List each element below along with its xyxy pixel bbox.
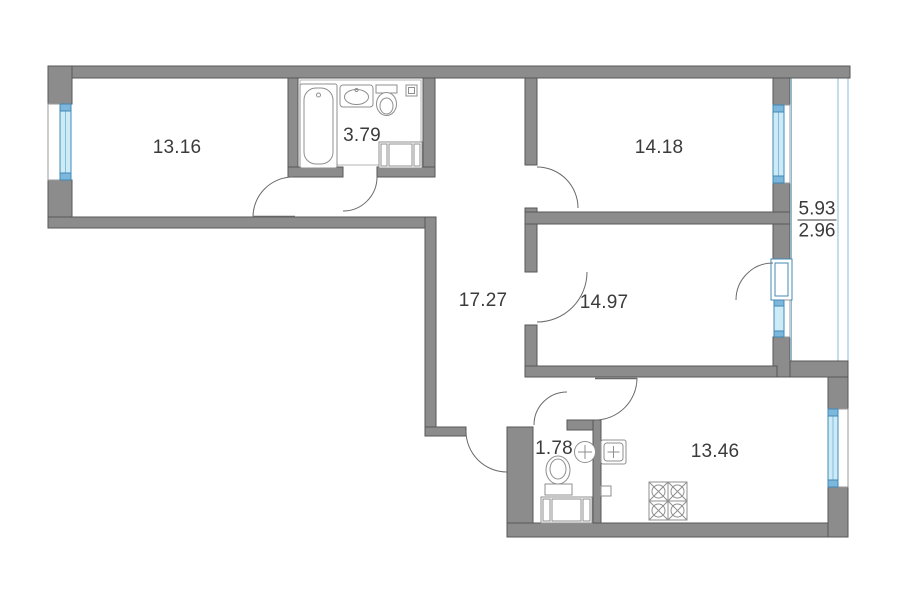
wall-room2-left <box>525 78 537 165</box>
balcony-door <box>771 259 792 300</box>
wc-washing-machine <box>541 497 592 523</box>
window-left <box>48 104 71 180</box>
window-cap-bottom <box>828 480 838 487</box>
washer-outer <box>379 142 422 168</box>
toilet-tank <box>376 85 397 93</box>
toilet-bowl <box>377 93 397 116</box>
door-arc-balcony <box>736 263 773 300</box>
window-cap-top <box>60 104 71 111</box>
vent-outer <box>406 85 417 96</box>
wall-right-upper <box>773 78 790 105</box>
label-living-room-3: 14.97 <box>580 292 629 314</box>
gas-meter-box <box>601 486 611 496</box>
window-cap-bottom <box>773 176 784 183</box>
label-kitchen: 13.46 <box>691 441 740 463</box>
bathroom-washing-machine <box>379 142 422 168</box>
wall-entrance-left <box>425 427 466 436</box>
wall-hall-left <box>425 217 436 436</box>
door-arc-wc <box>534 392 567 425</box>
wc-toilet <box>545 456 572 495</box>
toilet-tank <box>545 484 572 495</box>
balcony-area-full: 5.93 <box>798 199 837 221</box>
meter-outer <box>601 486 611 496</box>
kitchen-sink <box>601 440 626 464</box>
label-hallway: 17.27 <box>459 290 508 312</box>
window-kitchen <box>828 409 848 487</box>
window-room2 <box>773 105 790 183</box>
bathroom-vent-box <box>406 85 417 96</box>
bathtub <box>300 84 337 168</box>
window-recess <box>837 409 848 487</box>
wall-entrance-right-block <box>507 427 533 527</box>
balcony-area-reduced: 2.96 <box>798 221 837 242</box>
door-arc-bathroom <box>343 177 377 211</box>
kitchen-stove <box>649 482 687 520</box>
window-cap-top <box>828 409 838 416</box>
label-balcony: 5.93 2.96 <box>798 199 837 242</box>
wall-bathroom-left <box>288 78 298 177</box>
wall-left-upper <box>48 66 72 104</box>
label-living-room-1: 13.16 <box>153 137 202 159</box>
door-arc-kitchen <box>595 378 637 420</box>
wall-room3-left-upper <box>525 224 537 272</box>
wall-wc-right <box>593 420 601 523</box>
window-room3 <box>774 300 790 337</box>
bathroom-toilet <box>376 85 397 116</box>
label-bathroom: 3.79 <box>343 125 381 147</box>
wc-basin <box>575 442 596 463</box>
balcony-door-inner <box>775 263 788 296</box>
door-arc-room1 <box>253 177 293 217</box>
window-cap-bottom <box>60 173 71 180</box>
door-arc-entrance <box>466 431 507 472</box>
window-cap-top <box>774 300 784 306</box>
wall-room3-bottom <box>525 366 777 377</box>
label-living-room-2: 14.18 <box>635 137 684 159</box>
washer-outer <box>541 497 592 523</box>
floor-plan-drawing <box>0 0 900 600</box>
window-cap-top <box>773 105 784 112</box>
balcony-railing <box>838 78 848 362</box>
window-cap-bottom <box>774 331 784 337</box>
bathroom-sink <box>340 85 373 107</box>
door-arc-room2 <box>537 167 578 208</box>
floor-plan: 13.16 3.79 14.18 17.27 14.97 1.78 13.46 … <box>0 0 900 600</box>
wall-bottom-left-wing <box>48 217 436 228</box>
wall-bathroom-right <box>423 78 435 177</box>
wall-wc-top <box>567 420 593 430</box>
wall-kitchen-right-lower <box>828 487 848 537</box>
wall-room2-room3 <box>525 212 790 224</box>
wall-bottom <box>507 523 848 537</box>
label-wc: 1.78 <box>535 438 573 460</box>
wall-top <box>48 66 850 78</box>
